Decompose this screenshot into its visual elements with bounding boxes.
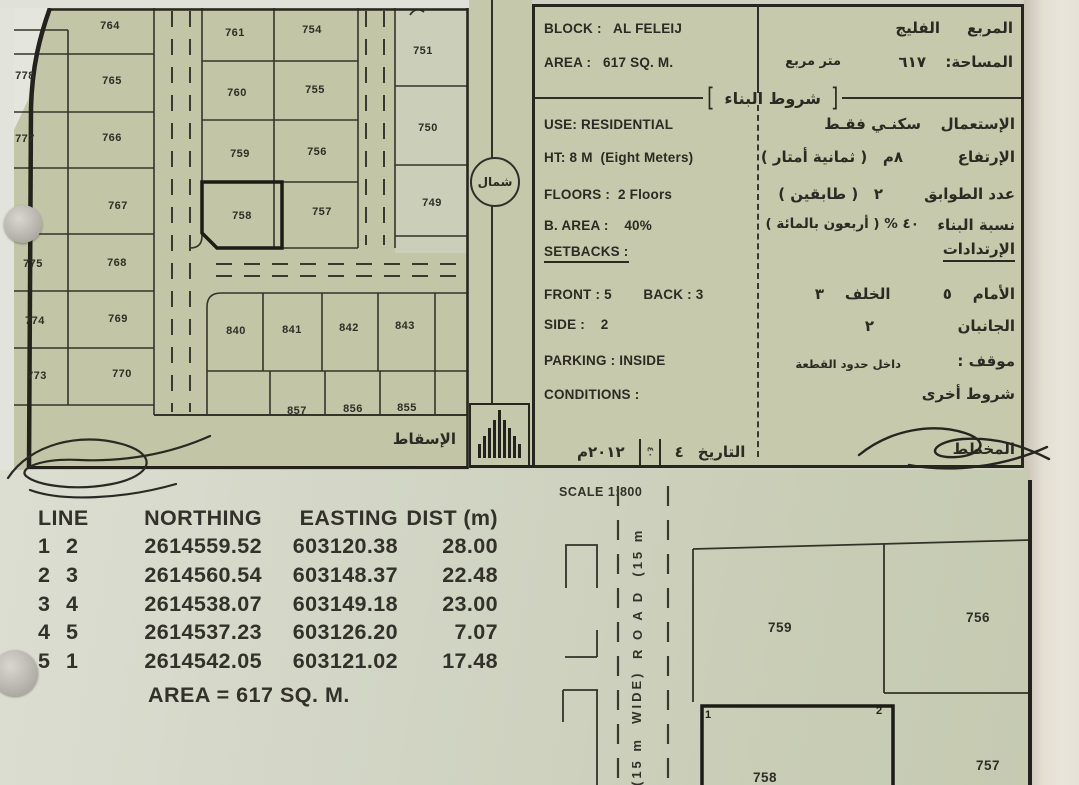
table-cell: 7.07 xyxy=(398,620,498,645)
setbacks-header-en: SETBACKS : xyxy=(544,244,629,263)
table-cell: 1 xyxy=(66,649,110,674)
table-row: 512614542.05603121.0217.48 xyxy=(38,647,498,676)
map-plot-749: 749 xyxy=(422,197,442,209)
table-row: 122614559.52603120.3828.00 xyxy=(38,533,498,562)
date-label: التاريخ xyxy=(698,443,746,461)
map-plot-855: 855 xyxy=(397,402,417,414)
building-terms-header: [ شروط البناء ] xyxy=(535,87,1021,109)
floors-label-ar: عدد الطوابق xyxy=(924,185,1015,203)
barea-row-en: B. AREA : 40% xyxy=(544,218,652,233)
use-label-ar: الإستعمال xyxy=(941,115,1015,133)
rule-line xyxy=(842,97,1021,99)
area-row-en: AREA : 617 SQ. M. xyxy=(544,55,673,70)
rule-line xyxy=(535,97,703,99)
side-row-en: SIDE : 2 xyxy=(544,317,608,332)
floors-row-en: FLOORS : 2 Floors xyxy=(544,187,672,202)
bar xyxy=(513,436,516,458)
parking-label-ar: موقف : xyxy=(957,352,1015,370)
col-dist: DIST (m) xyxy=(398,506,498,531)
floors-value-ar: ٢ ( طابقين ) xyxy=(778,185,883,203)
table-cell: 2614559.52 xyxy=(110,534,262,559)
table-cell: 603126.20 xyxy=(262,620,398,645)
barea-label-ar: نسبة البناء xyxy=(937,216,1015,234)
map-plot-751: 751 xyxy=(413,45,433,57)
bar xyxy=(508,428,511,458)
side-value-ar: الجانبان ٢ xyxy=(865,317,1015,335)
road-label-upper: R O A D (15 m xyxy=(630,489,645,659)
area-value-ar: ٦١٧ xyxy=(899,53,926,71)
map-plot-765: 765 xyxy=(102,75,122,87)
map-plot-774: 774 xyxy=(25,315,45,327)
map-plot-778: 778 xyxy=(15,70,35,82)
area-total: AREA = 617 SQ. M. xyxy=(148,683,350,708)
bar xyxy=(498,410,501,458)
survey-table-rows: 122614559.52603120.3828.00232614560.5460… xyxy=(38,533,498,676)
bar xyxy=(503,420,506,458)
bracket-right: ] xyxy=(827,83,842,113)
front-back-value-ar: الأمام ٥ الخلف ٣ xyxy=(815,285,1015,303)
block-value-ar: الفليج xyxy=(895,19,940,37)
table-row: 342614538.07603149.1823.00 xyxy=(38,590,498,619)
map-plot-759: 759 xyxy=(230,148,250,160)
parking-row-en: PARKING : INSIDE xyxy=(544,353,665,368)
map-plot-856: 856 xyxy=(343,403,363,415)
column-divider xyxy=(757,7,759,93)
parking-value-ar: داخل حدود القطعة xyxy=(795,357,901,371)
map-plot-754: 754 xyxy=(302,24,322,36)
use-value-ar: سكنـي فقـط xyxy=(824,115,921,133)
table-cell: 603120.38 xyxy=(262,534,398,559)
height-label-ar: الإرتفاع xyxy=(958,148,1015,166)
column-divider-dashed xyxy=(757,105,759,457)
table-cell: 5 xyxy=(66,620,110,645)
table-cell: 3 xyxy=(38,592,66,617)
table-cell: 2614538.07 xyxy=(110,592,262,617)
north-indicator-icon: شمال xyxy=(470,157,520,207)
table-cell: 2 xyxy=(38,563,66,588)
detail-plan: 75975675875712 xyxy=(530,480,1079,785)
map-plot-760: 760 xyxy=(227,87,247,99)
table-cell: 2614542.05 xyxy=(110,649,262,674)
front-back-row-en: FRONT : 5 BACK : 3 xyxy=(544,287,704,302)
conditions-label-ar: شروط أخرى xyxy=(922,385,1015,403)
map-plot-841: 841 xyxy=(282,324,302,336)
map-plot-764: 764 xyxy=(100,20,120,32)
map-plot-773: 773 xyxy=(27,370,47,382)
table-cell: 2614560.54 xyxy=(110,563,262,588)
table-cell: 603149.18 xyxy=(262,592,398,617)
map-plot-761: 761 xyxy=(225,27,245,39)
use-row-en: USE: RESIDENTIAL xyxy=(544,117,673,132)
road-label-lower: (15 m WIDE) xyxy=(629,660,644,785)
bar xyxy=(493,420,496,458)
border-segment xyxy=(469,465,532,468)
bracket-left: [ xyxy=(703,83,718,113)
table-cell: 1 xyxy=(38,534,66,559)
conditions-row-en: CONDITIONS : xyxy=(544,387,639,402)
height-value-ar: ٨م ( ثمانية أمتار ) xyxy=(761,148,903,166)
block-label-ar: المربع xyxy=(967,19,1013,37)
projection-label: الإسقاط xyxy=(382,430,456,448)
scanned-land-survey-document: 7787777757747737647657667677687697707617… xyxy=(0,0,1079,785)
bar xyxy=(518,444,521,458)
planner-label: المخطط xyxy=(953,440,1015,458)
table-cell: 28.00 xyxy=(398,534,498,559)
table-row: 452614537.23603126.207.07 xyxy=(38,618,498,647)
table-cell: 5 xyxy=(38,649,66,674)
detail-plot-759: 759 xyxy=(768,620,792,635)
building-terms-title: شروط البناء xyxy=(718,89,827,108)
corner-marker-2: 2 xyxy=(876,705,882,717)
date-stamp: ٤٠ xyxy=(639,439,661,465)
cadastral-map: 7787777757747737647657667677687697707617… xyxy=(14,8,469,470)
map-plot-777: 777 xyxy=(15,133,35,145)
table-cell: 3 xyxy=(66,563,110,588)
map-plot-757: 757 xyxy=(312,206,332,218)
area-label-ar: المساحة: xyxy=(945,53,1013,71)
table-cell: 2614537.23 xyxy=(110,620,262,645)
map-plot-840: 840 xyxy=(226,325,246,337)
date-row: التاريخ ٤ ٤٠ ٢٠١٢م xyxy=(577,439,745,465)
subject-plot-outline-detail xyxy=(702,706,893,785)
table-cell: 4 xyxy=(38,620,66,645)
map-plot-857: 857 xyxy=(287,405,307,417)
table-cell: 603121.02 xyxy=(262,649,398,674)
area-unit-ar: متر مربع xyxy=(785,54,841,69)
north-label: شمال xyxy=(478,175,513,189)
setbacks-label-ar: الإرتدادات xyxy=(943,240,1015,262)
projection-bars-icon xyxy=(469,403,530,467)
table-cell: 4 xyxy=(66,592,110,617)
bar xyxy=(478,444,481,458)
map-plot-842: 842 xyxy=(339,322,359,334)
divider-strip xyxy=(469,0,532,468)
col-northing: NORTHING xyxy=(110,506,262,531)
col-easting: EASTING xyxy=(262,506,398,531)
table-cell: 22.48 xyxy=(398,563,498,588)
col-line: LINE xyxy=(38,506,110,531)
table-cell: 23.00 xyxy=(398,592,498,617)
bar xyxy=(488,428,491,458)
map-plot-766: 766 xyxy=(102,132,122,144)
detail-plot-756: 756 xyxy=(966,610,990,625)
height-row-en: HT: 8 M (Eight Meters) xyxy=(544,150,693,165)
map-plot-750: 750 xyxy=(418,122,438,134)
map-plot-843: 843 xyxy=(395,320,415,332)
table-cell: 17.48 xyxy=(398,649,498,674)
bar xyxy=(483,436,486,458)
map-plot-755: 755 xyxy=(305,84,325,96)
barea-value-ar: ٤٠ % ( أربعون بالمائة ) xyxy=(765,216,919,232)
map-plot-775: 775 xyxy=(23,258,43,270)
table-cell: 2 xyxy=(66,534,110,559)
date-year: ٢٠١٢م xyxy=(577,443,625,461)
table-cell: 603148.37 xyxy=(262,563,398,588)
table-header-row: LINE NORTHING EASTING DIST (m) xyxy=(38,504,498,533)
coordinate-table: LINE NORTHING EASTING DIST (m) 122614559… xyxy=(38,504,498,676)
detail-plot-758: 758 xyxy=(753,770,777,785)
table-row: 232614560.54603148.3722.48 xyxy=(38,561,498,590)
paper-pin-icon xyxy=(4,205,42,243)
map-plot-767: 767 xyxy=(108,200,128,212)
date-day: ٤ xyxy=(675,443,684,461)
map-plot-768: 768 xyxy=(107,257,127,269)
map-plot-758: 758 xyxy=(232,210,252,222)
map-plot-756: 756 xyxy=(307,146,327,158)
map-plot-770: 770 xyxy=(112,368,132,380)
detail-plot-757: 757 xyxy=(976,758,1000,773)
building-spec-panel: القطعة : ٧٥٨ BLOCK : AL FELEIJ الفليج ال… xyxy=(532,4,1024,468)
corner-marker-1: 1 xyxy=(705,709,711,721)
top-paper-margin xyxy=(0,0,469,8)
block-row-en: BLOCK : AL FELEIJ xyxy=(544,21,682,36)
map-plot-769: 769 xyxy=(108,313,128,325)
